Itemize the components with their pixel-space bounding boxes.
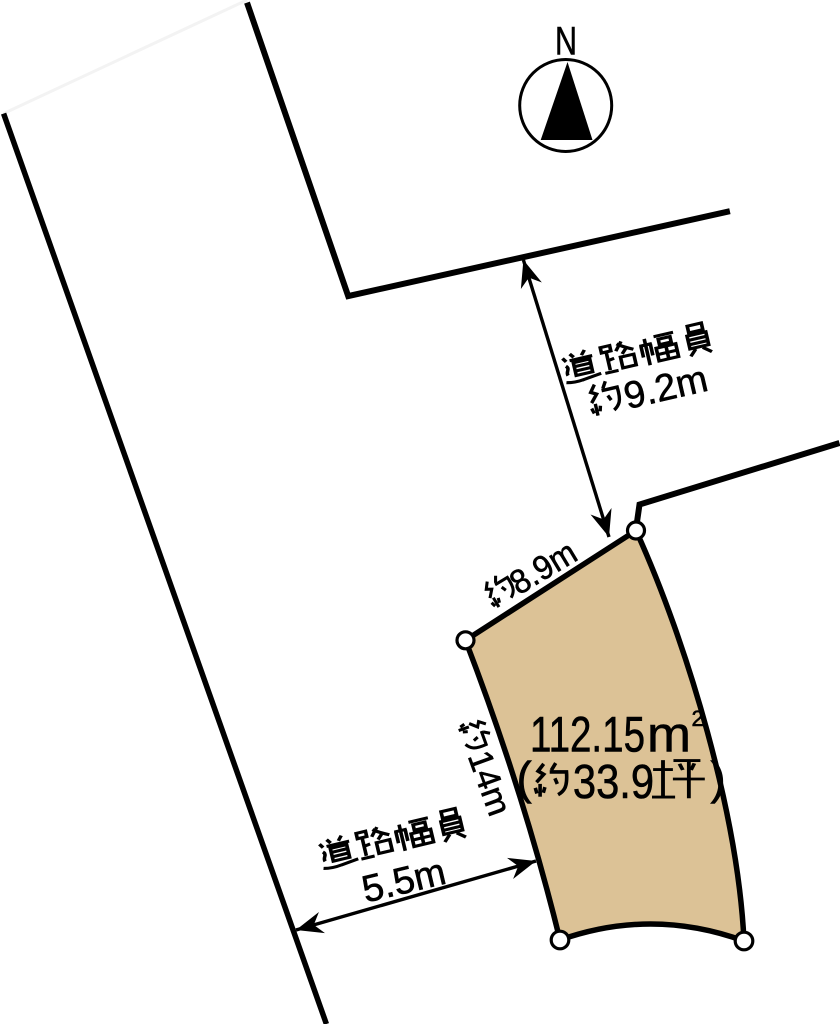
svg-text:112.15: 112.15 <box>530 707 645 763</box>
svg-text:m: m <box>647 707 691 763</box>
svg-text:(: ( <box>517 752 533 804</box>
svg-text:2: 2 <box>692 706 704 731</box>
svg-text:33.9: 33.9 <box>573 756 654 809</box>
svg-text:): ) <box>710 752 725 804</box>
svg-text:N: N <box>555 20 577 64</box>
